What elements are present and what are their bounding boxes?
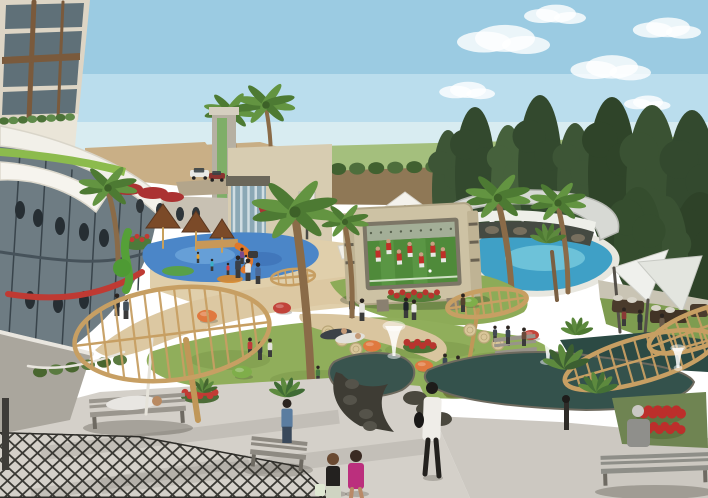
- screen-player: [397, 260, 402, 264]
- screen-player: [430, 246, 435, 253]
- person-head: [456, 356, 460, 360]
- person-head: [240, 248, 243, 251]
- screen-player: [441, 251, 446, 258]
- palm-crown: [104, 184, 112, 192]
- woman-white-coat: [422, 397, 442, 442]
- screen-player: [431, 253, 436, 257]
- person-head: [246, 258, 251, 263]
- person-torso: [248, 342, 253, 350]
- flower-bloom: [135, 234, 140, 239]
- person-head: [236, 255, 241, 260]
- waterfall-rocks: [226, 176, 270, 186]
- car-wheel: [203, 176, 207, 180]
- beanbag-body: [363, 340, 381, 351]
- person-torso: [123, 301, 129, 311]
- shopper2-leg: [351, 489, 352, 498]
- bench-leg: [92, 417, 97, 429]
- person-torso: [268, 343, 273, 351]
- person-head: [227, 263, 230, 266]
- woman-white-bag: [414, 412, 424, 428]
- sign-pylon-cap: [209, 107, 239, 115]
- sofa-cushions: [627, 297, 637, 303]
- sofa-cushions: [613, 295, 623, 301]
- straw-pouf: [478, 331, 490, 343]
- hedge-bush: [56, 114, 66, 122]
- sofa-cushions: [665, 307, 675, 313]
- shopper-skirt: [326, 486, 341, 498]
- bollard-cap: [562, 395, 570, 403]
- person-legs: [360, 313, 365, 321]
- flower-bloom: [130, 237, 135, 242]
- person-legs: [412, 312, 416, 320]
- pool-highlight: [505, 245, 585, 271]
- person-head: [245, 255, 248, 258]
- hedge-bush: [387, 162, 403, 174]
- cloud: [609, 65, 651, 81]
- net-post: [2, 398, 9, 470]
- hedge-bush: [18, 116, 28, 124]
- terrace-people: [176, 207, 184, 221]
- rocks: [343, 395, 357, 405]
- car-wheel: [192, 176, 196, 180]
- hedge-bush: [406, 161, 422, 173]
- pavilion-furniture: [485, 226, 499, 234]
- person-head: [638, 310, 642, 314]
- person-torso: [411, 304, 416, 313]
- shopper2-hair: [350, 450, 362, 462]
- screen-player: [408, 253, 413, 257]
- rocks: [345, 379, 359, 389]
- flower-bloom: [411, 289, 417, 295]
- child: [197, 252, 200, 263]
- tower-windows: [2, 89, 77, 115]
- rocks: [359, 409, 373, 419]
- person-torso: [235, 260, 241, 270]
- person-head: [522, 328, 526, 332]
- pavilion-furniture: [513, 227, 527, 235]
- person-torso: [493, 329, 497, 336]
- lounge-person: [637, 310, 642, 331]
- spiral-slide: [113, 259, 131, 277]
- hedge-bush: [65, 113, 75, 121]
- person-legs: [506, 337, 510, 344]
- architectural-rendering-canvas: [0, 0, 708, 498]
- person-head: [412, 300, 416, 304]
- flower-bloom: [417, 293, 423, 299]
- person-legs: [246, 273, 251, 281]
- lying-person-head: [341, 328, 347, 334]
- beanbag-body: [232, 366, 252, 378]
- person-torso: [210, 261, 213, 266]
- woman-white-leg: [436, 440, 439, 476]
- walker: [245, 258, 251, 281]
- person-torso: [622, 312, 627, 320]
- person-torso: [245, 263, 251, 273]
- person-torso: [255, 267, 260, 276]
- beanbag-highlight: [235, 368, 244, 372]
- screen-part: [376, 299, 389, 312]
- screen-player: [376, 258, 381, 262]
- woman-white-hair: [426, 382, 438, 394]
- shopper2-leg: [360, 489, 362, 498]
- flower-bloom: [677, 425, 686, 434]
- person-head: [316, 366, 319, 369]
- walker: [235, 255, 241, 278]
- pavilion-furniture: [571, 234, 585, 242]
- child: [210, 259, 213, 271]
- playground-patch: [162, 266, 194, 276]
- screen-player: [407, 246, 412, 253]
- scene-svg: [0, 0, 708, 498]
- mall-patrons: [79, 223, 89, 241]
- screen-part: [469, 222, 478, 225]
- hedge-bush: [368, 162, 384, 174]
- person-head: [360, 298, 365, 303]
- person-legs: [268, 350, 272, 357]
- beanbag-highlight: [464, 299, 471, 303]
- tropical-plant: [560, 317, 594, 337]
- path-walker: [359, 298, 365, 321]
- person-head: [622, 308, 626, 312]
- child: [226, 263, 229, 275]
- person-head: [506, 326, 510, 330]
- fountain-mist: [383, 321, 406, 332]
- person-legs: [236, 270, 241, 278]
- beanbag-highlight: [366, 342, 374, 346]
- person-torso: [281, 409, 292, 428]
- bench-leg: [180, 411, 185, 423]
- person-torso: [522, 332, 527, 340]
- shopper-top: [326, 466, 340, 488]
- stroller: [248, 251, 258, 258]
- flower-bloom: [430, 342, 437, 349]
- screen-part: [469, 240, 478, 243]
- terrace-umbrella-red: [160, 192, 184, 202]
- trellis-slat: [278, 272, 279, 284]
- playground-patch: [175, 246, 235, 264]
- sofa-cushions: [651, 305, 661, 311]
- lawn-person: [268, 339, 273, 357]
- person-torso: [403, 302, 408, 311]
- person-head: [211, 259, 214, 262]
- cloud: [502, 36, 550, 54]
- palm-crown: [342, 219, 348, 225]
- old-man-body: [627, 419, 650, 447]
- cloud: [554, 12, 586, 24]
- path-walker: [403, 298, 408, 319]
- flower-bloom: [388, 289, 394, 295]
- man-blue: [281, 399, 292, 443]
- cloud: [666, 26, 701, 39]
- person-torso: [240, 251, 244, 258]
- screen-part: [470, 258, 479, 261]
- figure-shadow: [345, 491, 369, 497]
- screen-player: [386, 250, 391, 254]
- straw-pouf: [464, 324, 476, 336]
- flower-bloom: [145, 234, 150, 239]
- shopper-hair: [327, 453, 339, 465]
- rocks: [363, 421, 377, 431]
- tower-windows: [4, 31, 82, 57]
- person-legs: [461, 305, 465, 312]
- flower-bloom: [423, 289, 429, 295]
- old-man-hair: [632, 405, 644, 417]
- person-legs: [404, 310, 408, 318]
- pouf-body: [478, 331, 490, 343]
- fountain-foam: [674, 365, 683, 371]
- person-legs: [211, 266, 214, 271]
- person-head: [197, 252, 199, 254]
- lying-person-head: [355, 333, 361, 339]
- person-legs: [638, 322, 642, 330]
- fountain-mist: [534, 320, 561, 333]
- path-walker: [461, 294, 466, 312]
- path-walker: [411, 300, 416, 321]
- person-head: [660, 314, 664, 318]
- bollard-light: [564, 400, 569, 430]
- person-legs: [124, 311, 129, 319]
- pouf-body: [464, 324, 476, 336]
- hedge-bush: [27, 116, 37, 124]
- terrace-people: [136, 199, 144, 213]
- mall-patrons: [99, 229, 109, 247]
- napping-person-head: [152, 396, 162, 406]
- person-legs: [256, 276, 261, 284]
- flower-bloom: [400, 289, 406, 295]
- hedge-bush: [37, 115, 47, 123]
- mall-patrons: [55, 217, 65, 235]
- person-torso: [637, 314, 642, 323]
- person-torso: [197, 254, 200, 259]
- shopper2-top: [348, 463, 364, 489]
- person-head: [282, 399, 291, 408]
- flower-bloom: [394, 293, 400, 299]
- screen-player: [419, 263, 424, 267]
- person-torso: [506, 330, 511, 338]
- car-cabin: [212, 171, 221, 175]
- bench-sitter: [522, 328, 527, 346]
- flower-bloom: [434, 289, 440, 295]
- person-legs: [258, 353, 262, 360]
- person-head: [404, 298, 408, 302]
- hedge-bush: [8, 117, 18, 125]
- screen-player: [375, 251, 380, 258]
- bench-shadow: [83, 420, 193, 436]
- mall-patrons: [15, 201, 25, 219]
- beanbag-highlight: [418, 362, 426, 366]
- walker: [255, 262, 260, 284]
- person-legs: [197, 259, 199, 263]
- mall-patrons: [33, 209, 43, 227]
- car-wheel: [220, 178, 224, 182]
- flower-bloom: [676, 409, 686, 419]
- screen-player: [386, 243, 391, 250]
- beanbag-body: [273, 302, 291, 313]
- palm-crown: [289, 206, 300, 217]
- beanbag-highlight: [276, 304, 284, 308]
- person-torso: [359, 303, 365, 313]
- hedge-bush: [349, 163, 365, 175]
- person-legs: [622, 319, 626, 326]
- tower-windows: [5, 3, 84, 29]
- car-wheel: [210, 178, 214, 182]
- bench-leg: [703, 470, 707, 482]
- flower-bloom: [140, 237, 145, 242]
- palm-crown: [554, 199, 561, 206]
- woman-white-leg: [425, 440, 428, 474]
- person-head: [256, 262, 260, 266]
- person-torso: [461, 298, 466, 306]
- person-head: [115, 293, 120, 298]
- hedge-bush: [46, 114, 56, 122]
- lounge-person: [622, 308, 627, 326]
- fountain-mist: [670, 344, 685, 351]
- hedge-bush: [330, 163, 346, 175]
- person-head: [443, 354, 447, 358]
- person-head: [461, 294, 465, 298]
- car-cabin: [194, 168, 204, 173]
- person-head: [268, 339, 272, 343]
- person-legs: [522, 339, 526, 346]
- shopping-bag: [315, 484, 325, 496]
- bench-leg: [603, 474, 607, 486]
- person-head: [248, 338, 252, 342]
- screen-player: [441, 258, 446, 262]
- person-torso: [226, 265, 229, 270]
- flower-bloom: [428, 293, 434, 299]
- palm-crown: [494, 194, 502, 202]
- fountain-foam: [387, 353, 400, 359]
- person-torso: [316, 369, 320, 376]
- screen-player: [397, 253, 402, 260]
- person-legs: [227, 270, 230, 275]
- cloud: [466, 88, 495, 99]
- tree: [632, 214, 666, 248]
- screen-player: [419, 256, 424, 263]
- palm-crown: [262, 101, 270, 109]
- person-head: [493, 326, 496, 329]
- bench-sitter: [506, 326, 511, 344]
- person-legs: [282, 427, 291, 443]
